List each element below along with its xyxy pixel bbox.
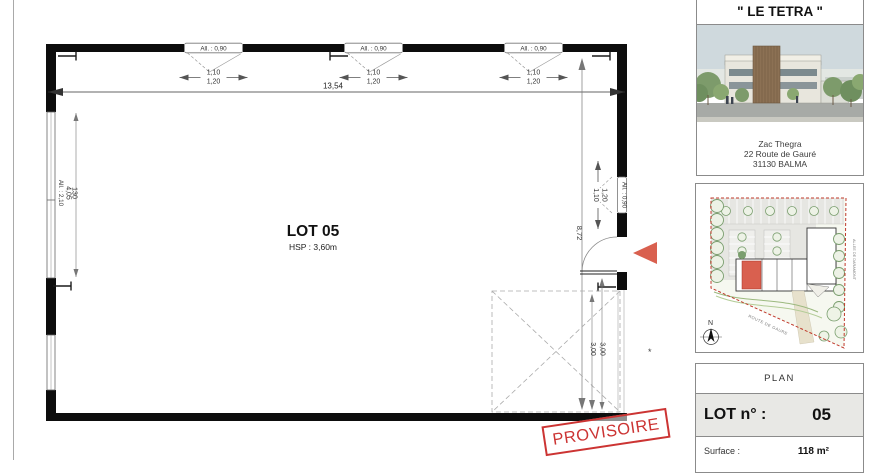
window-sill-label: All. : 0,90 xyxy=(520,46,547,53)
svg-text:1,20: 1,20 xyxy=(527,79,541,86)
title-block-lot-row: LOT n° : 05 xyxy=(696,394,863,437)
address-line-1: Zac Thegra xyxy=(697,139,863,149)
svg-text:1,20: 1,20 xyxy=(207,79,221,86)
svg-text:3,00: 3,00 xyxy=(599,342,606,356)
floor-plan: All. : 2,10 4,05 130 All. : 0,90 1,10 1,… xyxy=(0,0,690,460)
lot-number-value: 05 xyxy=(812,405,831,425)
project-title: " LE TETRA " xyxy=(697,0,863,25)
left-dim-a: 4,05 xyxy=(65,186,72,200)
svg-text:13,54: 13,54 xyxy=(323,82,344,91)
svg-text:N: N xyxy=(708,320,713,327)
entry-arrow-icon xyxy=(633,242,657,264)
left-window xyxy=(47,112,55,390)
lot-number-label: LOT n° : xyxy=(696,406,766,424)
entry-door xyxy=(580,237,617,274)
address-line-3: 31130 BALMA xyxy=(697,159,863,169)
map-lot-highlight xyxy=(742,261,761,289)
address-line-2: 22 Route de Gauré xyxy=(697,149,863,159)
title-block-plan-row: PLAN xyxy=(696,364,863,394)
dimension-total-height: 8,72 xyxy=(575,58,586,410)
map-alley-label: ALLEE DE DARAMONT xyxy=(852,239,856,281)
svg-text:1,10: 1,10 xyxy=(207,70,221,77)
plan-label: PLAN xyxy=(764,373,795,384)
svg-text:1,10: 1,10 xyxy=(592,188,599,202)
surface-value: 118 m² xyxy=(798,446,829,457)
provisional-area: 3,00 3,00 * xyxy=(492,278,652,413)
project-panel: " LE TETRA " Zac Thegra xyxy=(696,0,864,176)
svg-text:3,00: 3,00 xyxy=(589,342,596,356)
site-map-panel: ROUTE DE GAURE ALLEE DE DARAMONT N xyxy=(695,183,864,353)
top-window-3: All. : 0,90 1,10 1,20 xyxy=(500,43,568,85)
building-photo xyxy=(697,25,863,122)
lot-title: LOT 05 xyxy=(287,223,340,240)
north-arrow-icon: N xyxy=(700,320,722,345)
project-address: Zac Thegra 22 Route de Gauré 31130 BALMA xyxy=(697,127,863,169)
left-window-sill-label: All. : 2,10 xyxy=(57,180,64,207)
window-sill-label: All. : 0,90 xyxy=(200,46,227,53)
top-window-2: All. : 0,90 1,10 1,20 xyxy=(340,43,408,85)
top-window-1: All. : 0,90 1,10 1,20 xyxy=(180,43,248,85)
svg-text:1,20: 1,20 xyxy=(601,188,608,202)
window-sill-label: All. : 0,90 xyxy=(360,46,387,53)
svg-text:1,20: 1,20 xyxy=(367,79,381,86)
title-block-surface-row: Surface : 118 m² xyxy=(696,437,863,465)
svg-text:1,10: 1,10 xyxy=(367,70,381,77)
ceiling-height-label: HSP : 3,60m xyxy=(289,242,337,252)
svg-text:1,10: 1,10 xyxy=(527,70,541,77)
left-window-dimension: All. : 2,10 4,05 130 xyxy=(57,113,79,277)
window-sill-label: All. : 0,90 xyxy=(621,182,628,209)
surface-label: Surface : xyxy=(696,446,740,456)
svg-text:8,72: 8,72 xyxy=(575,226,584,241)
title-block-panel: PLAN LOT n° : 05 Surface : 118 m² xyxy=(695,363,864,473)
site-map: ROUTE DE GAURE ALLEE DE DARAMONT N xyxy=(696,184,863,352)
footnote-asterisk: * xyxy=(648,347,652,357)
left-dim-b: 130 xyxy=(71,187,78,199)
